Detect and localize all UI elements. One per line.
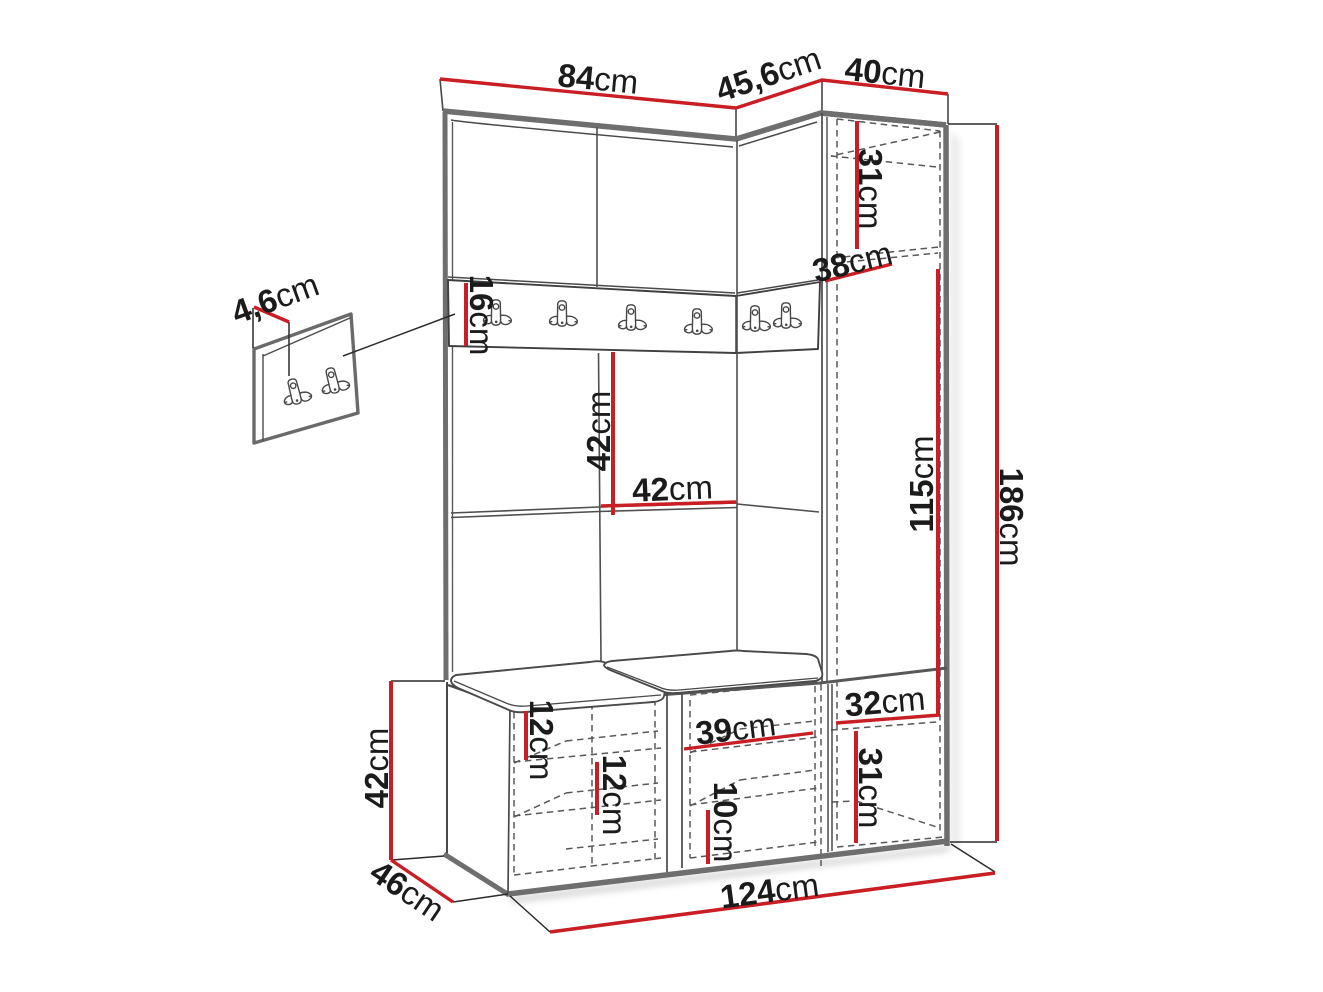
- svg-text:32cm: 32cm: [843, 680, 927, 724]
- svg-text:186cm: 186cm: [993, 467, 1030, 566]
- svg-text:12cm: 12cm: [523, 700, 560, 781]
- svg-text:16cm: 16cm: [463, 275, 500, 356]
- svg-text:42cm: 42cm: [358, 728, 395, 809]
- svg-text:115cm: 115cm: [903, 435, 940, 532]
- svg-text:42cm: 42cm: [580, 391, 617, 472]
- svg-text:10cm: 10cm: [707, 782, 744, 863]
- svg-text:42cm: 42cm: [631, 468, 713, 508]
- svg-text:31cm: 31cm: [852, 748, 889, 829]
- svg-text:12cm: 12cm: [596, 755, 633, 836]
- svg-text:84cm: 84cm: [556, 56, 640, 100]
- svg-text:31cm: 31cm: [852, 149, 889, 230]
